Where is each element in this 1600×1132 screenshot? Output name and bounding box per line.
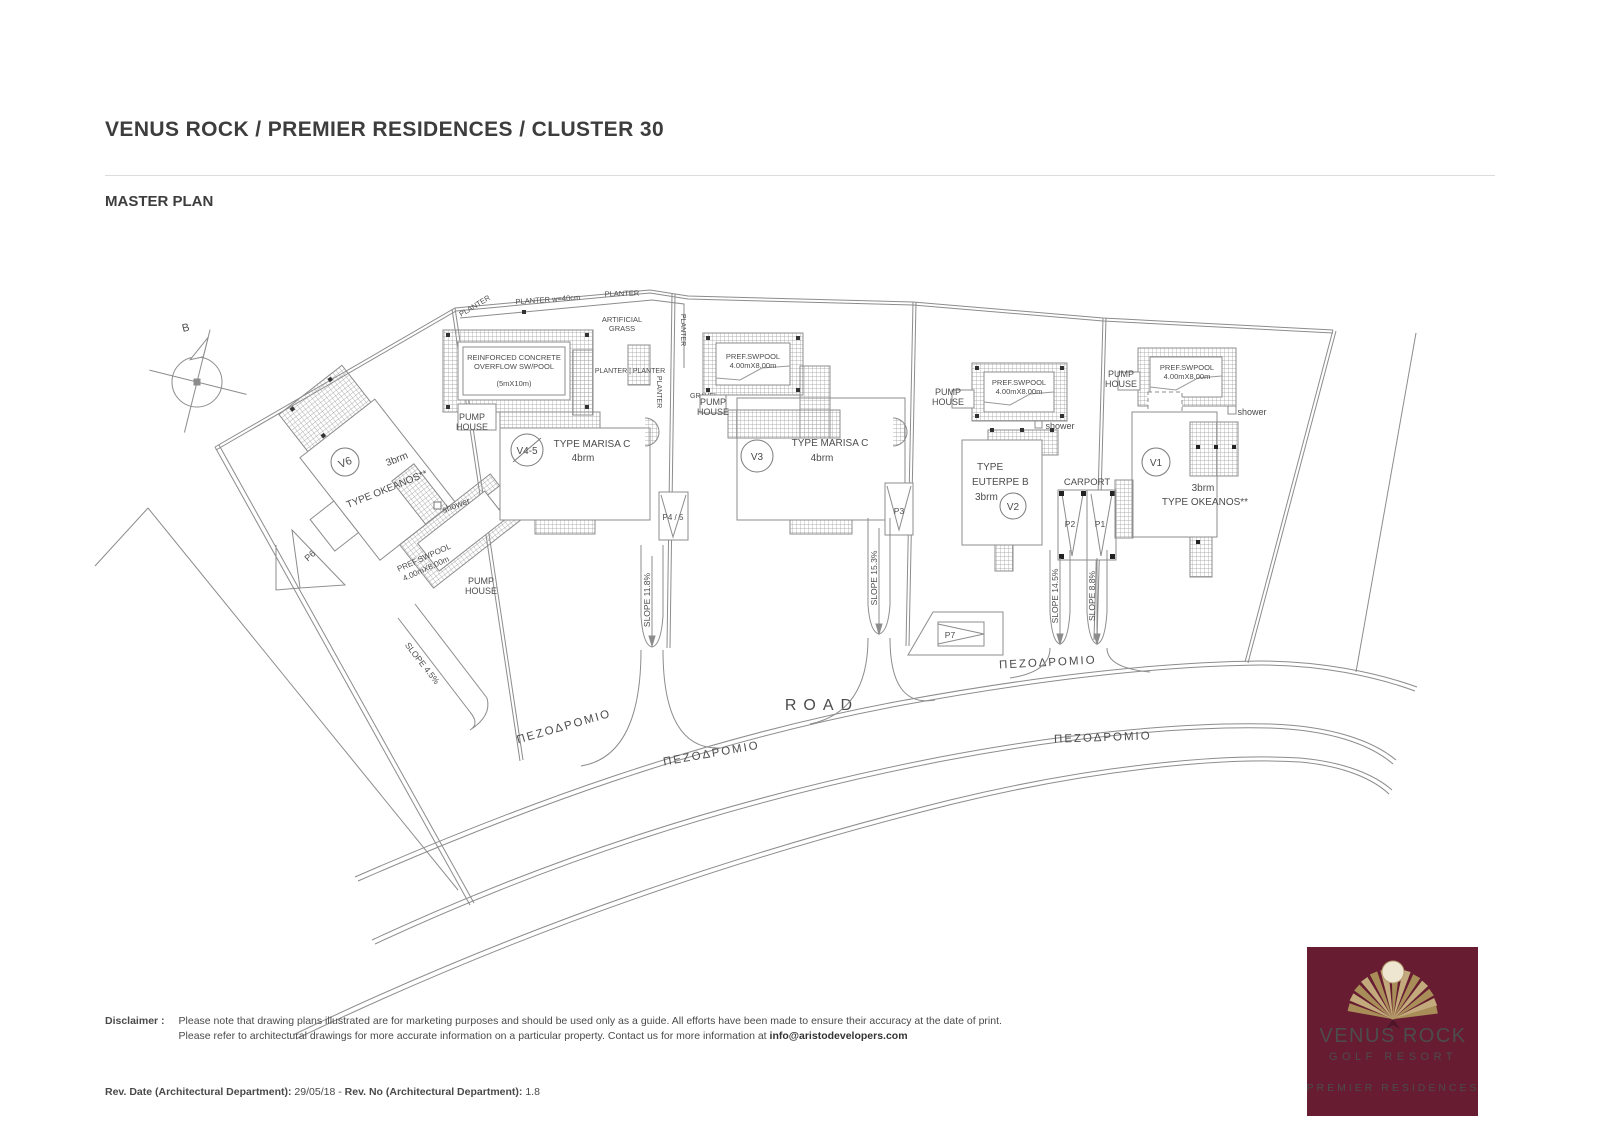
slope-88-label: SLOPE 8.8% [1087,571,1097,622]
v45-cpool-line2: OVERFLOW SW/POOL [474,362,554,371]
v2-brm: 3brm [975,492,998,503]
road-curves [293,661,1417,1039]
v1-pump-line1: PUMP [1108,369,1134,379]
rev-no-label: Rev. No (Architectural Department): [345,1086,523,1098]
disclaimer-label: Disclaimer : [105,1014,165,1044]
v3-brm: 4brm [811,453,834,464]
sidewalk-label-1: ΠΕΖΟΔΡΟΜΙΟ [516,708,613,746]
v45-type: TYPE MARISA C [554,439,631,450]
plot-v2: PREF.SWPOOL 4.00mX8.00m PUMP HOUSE showe… [932,363,1116,571]
v2-type-line2: EUTERPE B [972,477,1029,488]
v45-planter-3: PLANTER [679,314,686,346]
v2-pump-line2: HOUSE [932,397,964,407]
venus-rock-logo: VENUS ROCK GOLF RESORT PREMIER RESIDENCE… [1307,947,1478,1116]
sidewalk-label-4: ΠΕΖΟΔΡΟΜΙΟ [1054,730,1152,745]
v45-planter-pair: PLANTER | PLANTER [595,368,665,375]
p45-label: P4 / 5 [663,513,684,522]
v1-pool-line2: 4.00mX8.00m [1164,372,1211,381]
p7-island [908,612,1003,655]
disclaimer-line1: Please note that drawing plans illustrat… [179,1015,1002,1027]
v45-grass-line2: GRASS [609,324,635,333]
p7-label: P7 [945,630,956,640]
north-compass: B [137,318,260,445]
plot-v1: PREF.SWPOOL 4.00mX8.00m PUMP HOUSE showe… [1105,348,1267,577]
v45-planter-w: PLANTER w=40cm [515,293,580,306]
disclaimer-block: Disclaimer : Please note that drawing pl… [105,1014,1002,1044]
v6-pump-line2: HOUSE [465,586,497,596]
v45-brm: 4brm [572,453,595,464]
v3-pump-line2: HOUSE [697,407,729,417]
v45-pump-line2: HOUSE [456,422,488,432]
v45-cpool-line3: (5mX10m) [496,379,532,388]
v3-pool-line2: 4.00mX8.00m [730,361,777,370]
v45-planter-4: PLANTER [655,376,662,408]
p2-label: P2 [1065,519,1076,529]
disclaimer-email: info@aristodevelopers.com [770,1030,908,1042]
v2-id: V2 [1007,502,1020,513]
rev-date-label: Rev. Date (Architectural Department): [105,1086,292,1098]
v45-id: V4-5 [516,446,538,457]
v2-pool-line1: PREF.SWPOOL [992,378,1046,387]
v1-pool-line1: PREF.SWPOOL [1160,363,1214,372]
v6-pump-line1: PUMP [468,576,494,586]
logo-sub: GOLF RESORT [1329,1051,1457,1063]
compass-label: B [181,321,191,334]
slope-145-label: SLOPE 14.5% [1050,568,1060,623]
carport-label: CARPORT [1064,477,1110,488]
rev-no-value: 1.8 [522,1086,540,1098]
v2-shower-label: shower [1045,421,1074,431]
v3-pool-line1: PREF.SWPOOL [726,352,780,361]
v3-type: TYPE MARISA C [792,438,869,449]
slope-153-label: SLOPE 15.3% [869,550,879,605]
v2-pump-line1: PUMP [935,387,961,397]
road-label: ROAD [785,697,859,714]
v2-pool-line2: 4.00mX8.00m [996,387,1043,396]
v45-grass-line1: ARTIFICIAL [602,315,642,324]
logo-golfball-icon [1382,961,1404,983]
sidewalk-label-2: ΠΕΖΟΔΡΟΜΙΟ [662,740,760,769]
v45-cpool-line1: REINFORCED CONCRETE [467,353,561,362]
v1-type: TYPE OKEANOS** [1162,497,1248,508]
slope-45-label: SLOPE 4.5% [403,640,442,686]
disclaimer-line2: Please refer to architectural drawings f… [179,1030,770,1042]
v2-type-line1: TYPE [977,462,1003,473]
rev-date-value: 29/05/18 - [292,1086,345,1098]
v1-id: V1 [1150,458,1163,469]
v45-planter-1: PLANTER [458,293,493,319]
slope-118-label: SLOPE 11.8% [642,572,652,627]
revision-line: Rev. Date (Architectural Department): 29… [105,1086,540,1098]
plot-v3: PREF.SWPOOL 4.00mX8.00m PUMP HOUSE V3 TY… [697,333,907,534]
master-plan-page: VENUS ROCK / PREMIER RESIDENCES / CLUSTE… [0,0,1600,1132]
v45-planter-2: PLANTER [604,288,639,298]
v1-pump-line2: HOUSE [1105,379,1137,389]
v1-brm: 3brm [1192,483,1215,494]
p3-label: P3 [894,506,905,516]
logo-tagline: PREMIER RESIDENCES [1307,1082,1478,1094]
v1-shower-label: shower [1237,407,1266,417]
v3-pump-line1: PUMP [700,397,726,407]
logo-brand: VENUS ROCK [1319,1025,1466,1047]
v45-pump-line1: PUMP [459,412,485,422]
p6-label: P6 [303,548,318,563]
p1-label: P1 [1095,519,1106,529]
v3-id: V3 [751,452,764,463]
